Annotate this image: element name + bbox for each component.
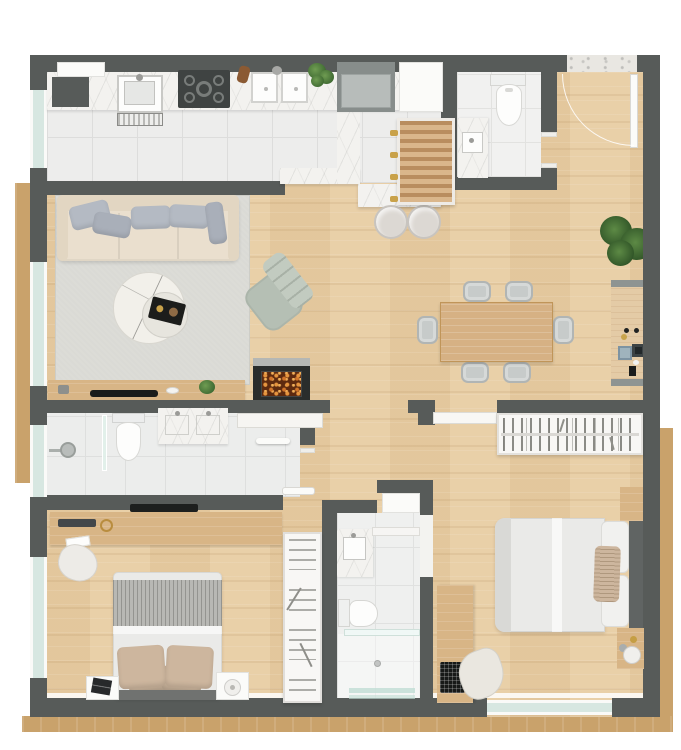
sideboard bbox=[611, 287, 643, 379]
bed1-fold bbox=[113, 626, 222, 634]
slatted-rack bbox=[397, 118, 455, 205]
bed2-duvet bbox=[495, 518, 605, 632]
book bbox=[91, 677, 112, 695]
drain bbox=[264, 87, 268, 91]
bed1-knit-throw bbox=[113, 580, 222, 626]
vanity-sink bbox=[196, 415, 220, 435]
throw-pillow bbox=[131, 205, 172, 229]
brass-knob bbox=[390, 130, 398, 136]
glass-shelf bbox=[349, 695, 415, 699]
herbs bbox=[311, 75, 324, 87]
door-jamb bbox=[300, 448, 315, 453]
laundry-cabinet bbox=[382, 493, 420, 513]
dining-chair bbox=[553, 316, 574, 344]
shower-head bbox=[60, 442, 76, 458]
sideboard-gold-decor bbox=[621, 334, 627, 340]
kitchen-faucet bbox=[272, 66, 282, 75]
burner-center bbox=[196, 81, 212, 97]
wall-powder-right bbox=[541, 168, 557, 180]
bookshelf-row bbox=[503, 418, 637, 433]
nightstand bbox=[620, 487, 643, 521]
kitchen-column bbox=[52, 77, 89, 107]
entry-threshold bbox=[567, 55, 637, 72]
glasses bbox=[100, 519, 113, 532]
toilet-bowl bbox=[349, 600, 378, 627]
window-living bbox=[30, 262, 47, 386]
sideboard-bottle bbox=[624, 328, 629, 333]
tray-candle bbox=[156, 304, 164, 312]
window-bedroom2 bbox=[487, 700, 612, 715]
glass-shelf bbox=[349, 688, 415, 693]
wall-top bbox=[30, 55, 567, 72]
window-kitchen bbox=[30, 90, 47, 168]
door-jamb bbox=[541, 132, 557, 137]
console-decor bbox=[58, 385, 69, 394]
kitchen-wall-shelf bbox=[57, 62, 105, 77]
burner bbox=[213, 92, 224, 103]
exterior-trim-bottom bbox=[22, 716, 672, 732]
wall-ensuite-right bbox=[420, 577, 433, 703]
wall-powder-right bbox=[541, 72, 557, 132]
kitchen-sink-left bbox=[251, 72, 278, 103]
bed1-headboard bbox=[116, 690, 219, 700]
open-wardrobe-rack bbox=[283, 532, 322, 703]
brass-knob bbox=[390, 174, 398, 180]
wall-powder-bottom bbox=[441, 177, 557, 190]
bookshelf-row bbox=[503, 436, 637, 451]
faucet bbox=[469, 138, 474, 143]
burner bbox=[184, 75, 195, 86]
dining-chair bbox=[417, 316, 438, 344]
throw-pillow bbox=[168, 204, 209, 229]
bedroom2-pocket-door bbox=[433, 412, 497, 424]
toilet-flush bbox=[505, 88, 513, 92]
sliding-door-handle bbox=[256, 438, 290, 444]
brass-knob bbox=[390, 152, 398, 158]
bar-stool bbox=[374, 205, 408, 239]
dining-chair bbox=[461, 362, 489, 383]
ensuite-door-threshold bbox=[420, 515, 433, 577]
wall-right bbox=[643, 55, 660, 700]
door-jamb bbox=[541, 163, 557, 168]
lamp-finial bbox=[230, 685, 235, 690]
sofa-armrest-right bbox=[228, 195, 239, 261]
console-dish bbox=[166, 387, 179, 394]
wall-ensuite-left bbox=[322, 500, 337, 703]
dining-table bbox=[440, 302, 553, 362]
faucet bbox=[351, 533, 356, 538]
keyboard bbox=[58, 519, 96, 527]
shower-glass-partition bbox=[102, 415, 107, 471]
sofa-armrest-left bbox=[57, 195, 68, 261]
dining-chair bbox=[463, 281, 491, 302]
sideboard-bottle bbox=[634, 328, 639, 333]
washboard bbox=[117, 113, 163, 126]
faucet bbox=[136, 74, 143, 81]
brass-knob bbox=[390, 196, 398, 202]
bar-stool bbox=[407, 205, 441, 239]
floor-plan-canvas bbox=[0, 0, 681, 750]
wall-kitchen-living bbox=[30, 181, 285, 195]
gold-clock bbox=[630, 636, 637, 643]
refrigerator-top bbox=[341, 74, 391, 108]
toilet-bowl bbox=[116, 422, 141, 461]
tv bbox=[90, 390, 158, 397]
wardrobe-shelf bbox=[287, 614, 318, 627]
wall-bottom-corner bbox=[612, 698, 660, 717]
wardrobe-shelf bbox=[287, 660, 318, 673]
table-lamp bbox=[623, 646, 641, 664]
bookshelf bbox=[497, 413, 643, 455]
vanity-sink bbox=[165, 415, 189, 435]
counter-return bbox=[337, 105, 360, 184]
window-bathroom bbox=[30, 425, 47, 497]
wall-bottom bbox=[30, 698, 487, 717]
dining-chair bbox=[503, 362, 531, 383]
cooktop bbox=[178, 70, 230, 108]
tray-bowl bbox=[168, 307, 179, 318]
burner bbox=[213, 75, 224, 86]
mirror-shelf bbox=[372, 527, 420, 536]
wall-bedroom2-top bbox=[497, 400, 643, 413]
sideboard-cup bbox=[633, 360, 639, 365]
sideboard-bowl bbox=[618, 346, 632, 360]
plant-leaf bbox=[607, 240, 634, 266]
utility-sink-basin bbox=[124, 81, 155, 105]
ensuite-sink bbox=[343, 537, 366, 560]
bathroom-sliding-door bbox=[237, 413, 323, 428]
bed2-headboard bbox=[629, 519, 643, 631]
burner bbox=[184, 92, 195, 103]
faucet bbox=[175, 411, 180, 416]
fireplace-embers bbox=[261, 371, 302, 397]
wall-tv bbox=[130, 504, 198, 512]
bed2-blanket-edge bbox=[495, 518, 511, 632]
shower-drain bbox=[374, 660, 381, 667]
console-plant bbox=[199, 380, 215, 394]
tall-cabinet bbox=[399, 62, 443, 112]
wall-nook-right bbox=[420, 480, 433, 515]
shower-glass bbox=[344, 629, 420, 636]
sideboard-box bbox=[629, 366, 636, 376]
woven-accent-pillow bbox=[593, 546, 621, 603]
wardrobe-shelf bbox=[287, 570, 318, 583]
wall-ensuite-top bbox=[337, 500, 377, 513]
bed-pillow bbox=[117, 644, 167, 689]
sideboard-end bbox=[611, 378, 643, 386]
exterior-trim-left bbox=[15, 183, 30, 483]
window-bedroom1 bbox=[30, 557, 47, 678]
towel-shelf bbox=[282, 487, 315, 495]
kitchen-sink-right bbox=[281, 72, 308, 103]
dining-chair bbox=[505, 281, 533, 302]
drain bbox=[294, 87, 298, 91]
bed-pillow bbox=[165, 645, 214, 689]
faucet bbox=[206, 411, 211, 416]
bed2-fold bbox=[552, 518, 562, 632]
